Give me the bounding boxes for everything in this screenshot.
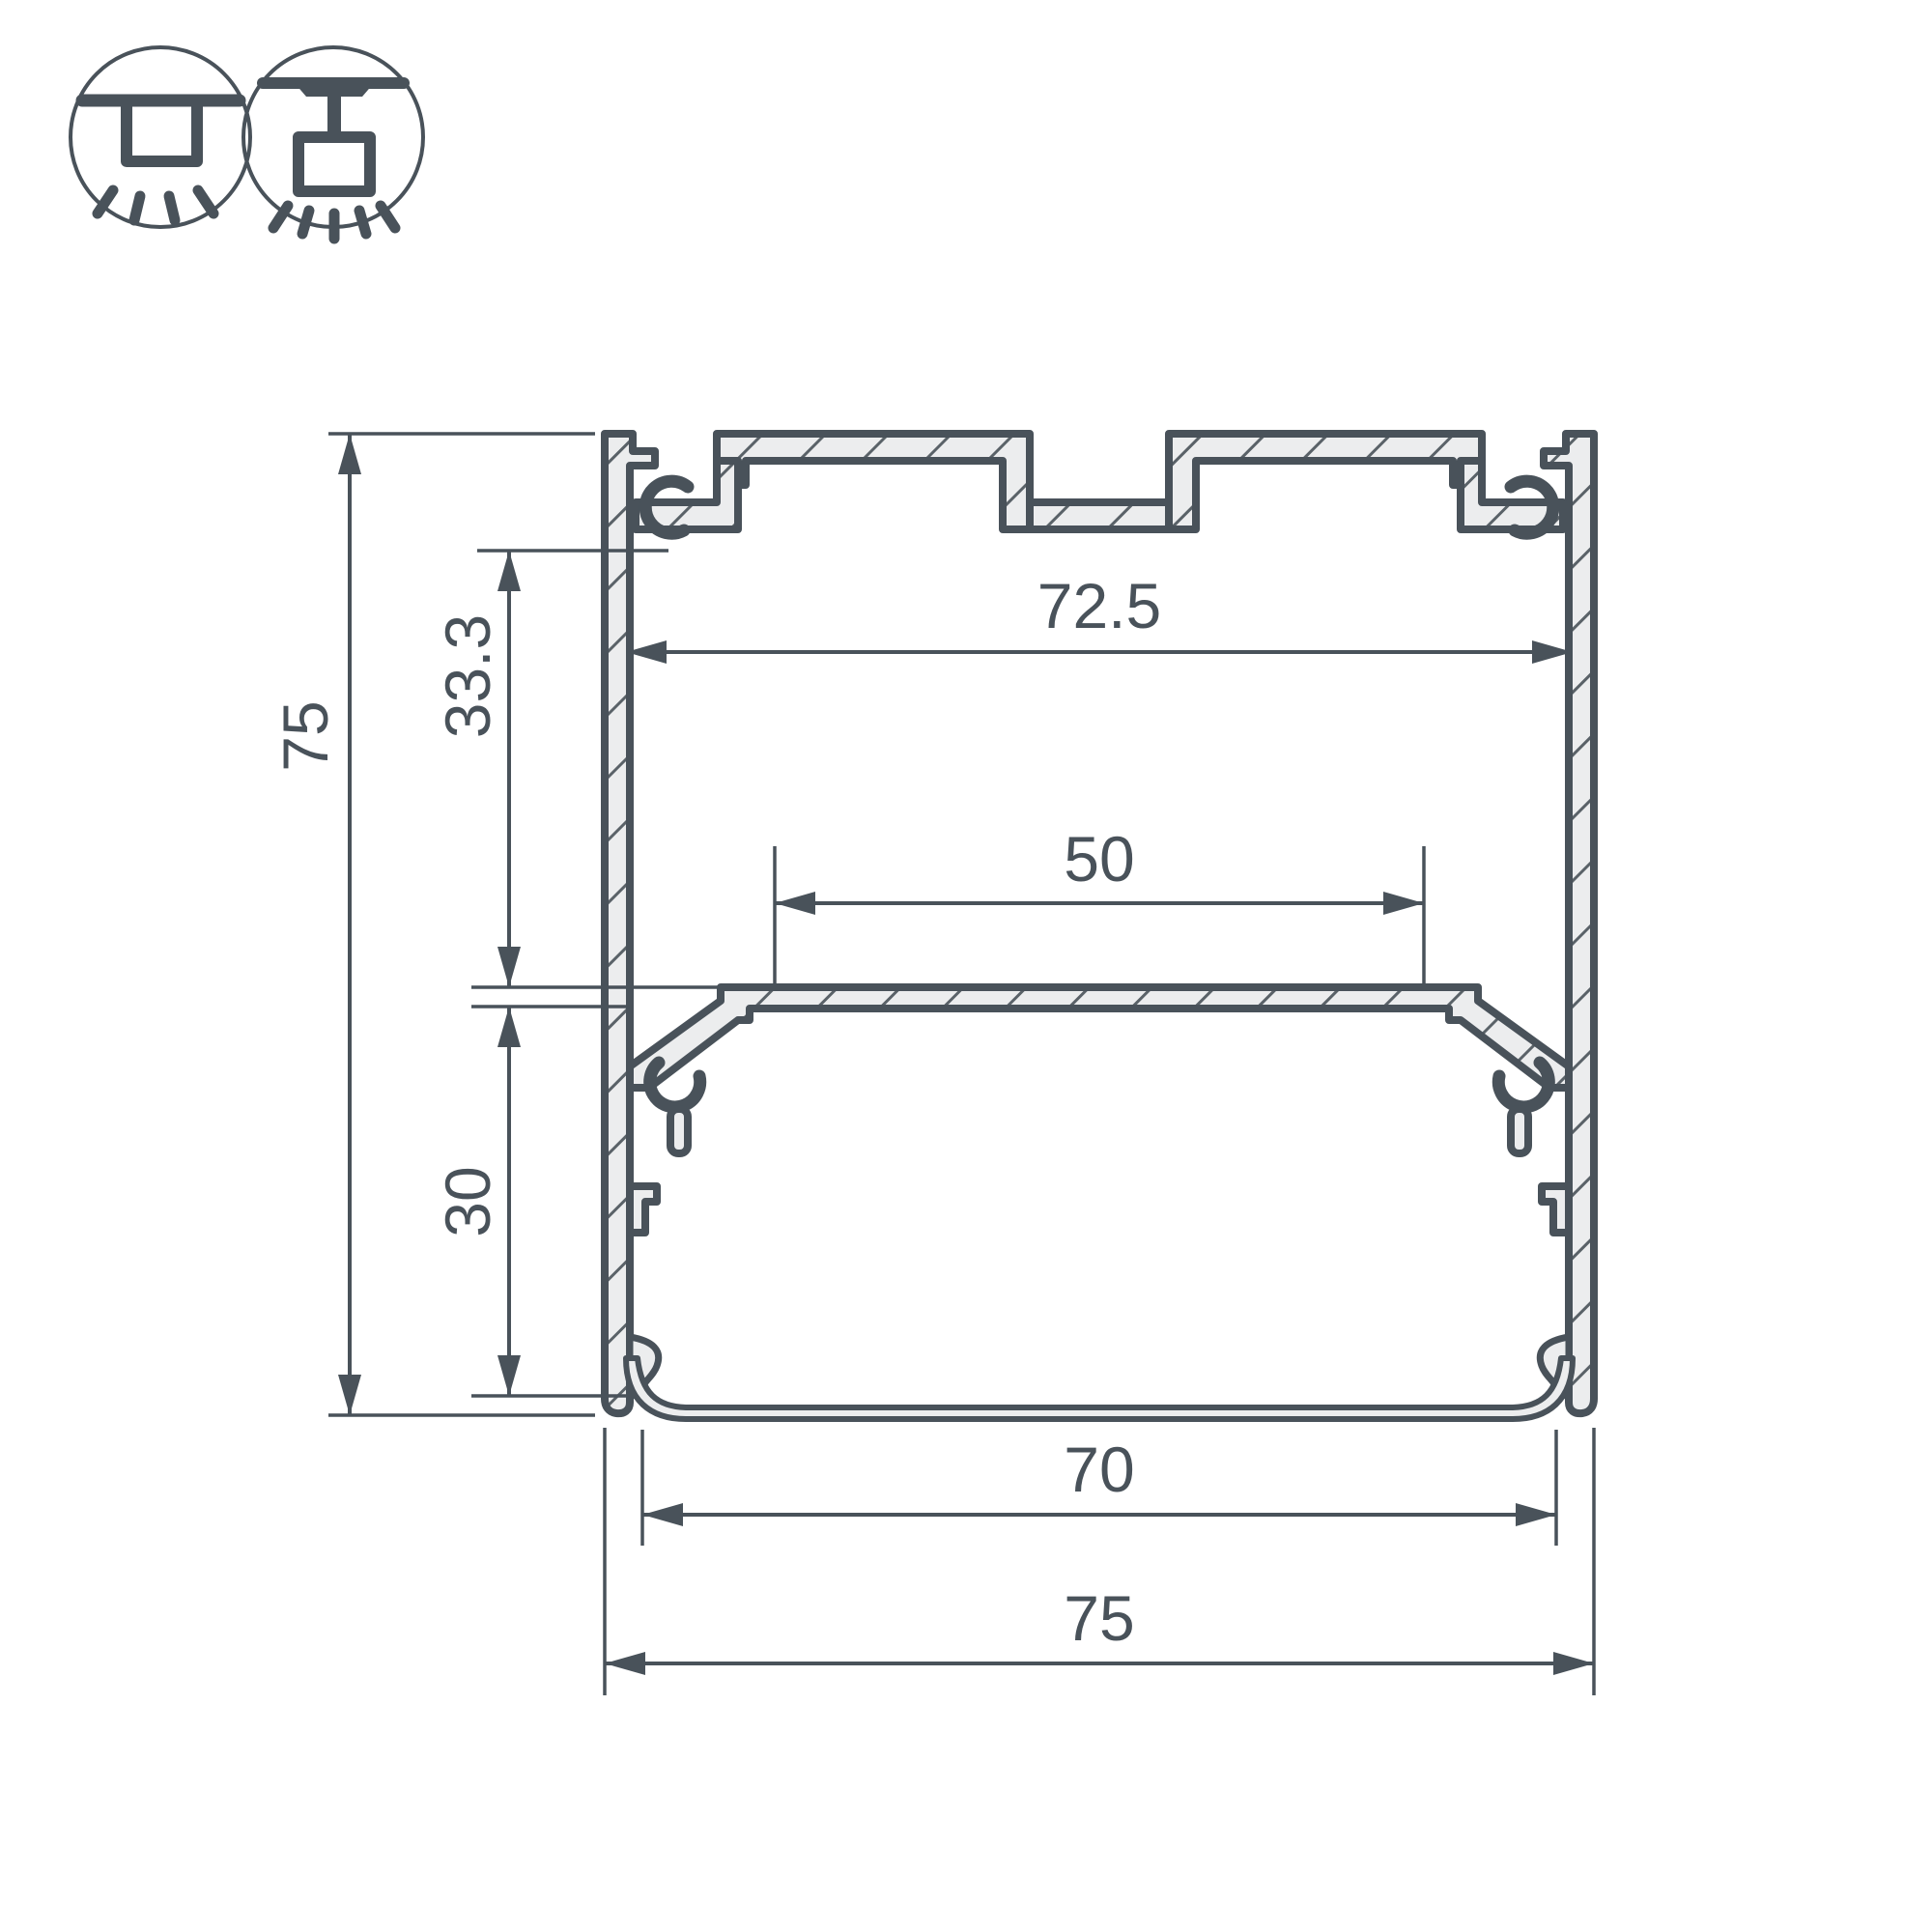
dimension-label-bottom-opening: 70 [1064,1434,1134,1505]
drawing-canvas: 75 33.3 30 72.5 [0,0,1932,1932]
pendant-mount-icon [243,47,423,239]
light-rays [273,206,395,239]
dimension-overall-height: 75 [270,434,595,1415]
dimension-led-shelf-width: 50 [775,823,1424,985]
right-wall [1544,434,1594,1413]
dimension-top-to-shelf: 33.3 [432,551,732,987]
dimension-label-overall-height: 75 [270,700,341,771]
drawing-page: 75 33.3 30 72.5 [0,0,1932,1932]
diffuser [626,1358,1573,1419]
top-plate-right [1169,434,1482,529]
arrowhead-down [497,1355,521,1396]
arrowhead-up [338,434,361,474]
icon-circle [71,47,250,227]
arrowhead-left [775,892,815,915]
fixture-box [298,137,370,191]
dimension-shelf-to-bottom: 30 [432,1007,630,1396]
arrowhead-left [642,1503,683,1526]
suspension-stem [327,95,341,137]
dimension-bottom-opening: 70 [642,1430,1556,1546]
dimension-inner-width: 72.5 [626,570,1573,664]
wall-hook-left [630,1186,657,1233]
arrowhead-left [605,1652,645,1675]
dimension-label-top-to-shelf: 33.3 [432,614,503,738]
arrowhead-down [338,1375,361,1415]
arrowhead-up [497,551,521,591]
mount-bracket [295,83,374,97]
dimension-label-overall-width: 75 [1064,1582,1134,1654]
boss-stub-left [670,1109,688,1153]
arrowhead-right [1383,892,1424,915]
fixture-box [127,100,197,161]
led-shelf [630,987,1569,1088]
left-wall [605,434,655,1413]
dimension-label-inner-width: 72.5 [1037,570,1161,641]
dimension-label-shelf-to-bottom: 30 [432,1166,503,1236]
arrowhead-up [497,1007,521,1047]
dimension-label-led-shelf-width: 50 [1064,823,1134,895]
arrowhead-right [1516,1503,1556,1526]
arrowhead-right [1553,1652,1594,1675]
boss-stub-right [1511,1109,1528,1153]
wall-hook-right [1542,1186,1569,1233]
top-center-channel [1030,502,1169,529]
arrowhead-down [497,947,521,987]
surface-mount-icon [71,47,250,227]
top-plate-left [717,434,1030,529]
